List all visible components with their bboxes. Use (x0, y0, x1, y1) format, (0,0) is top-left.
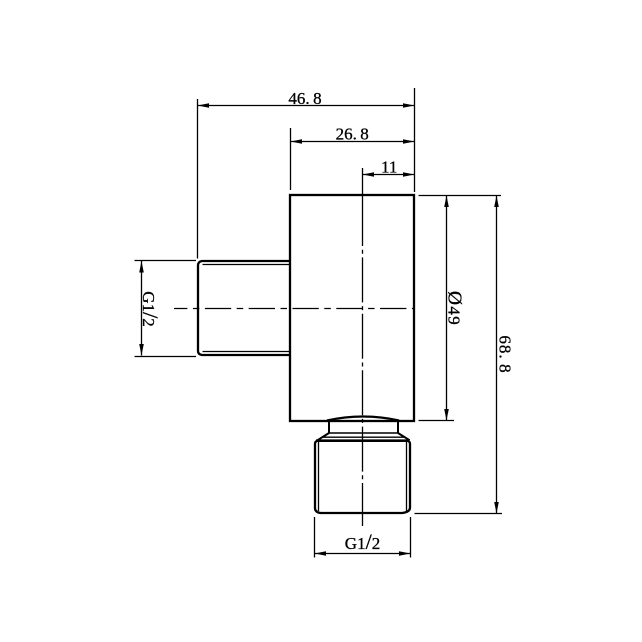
svg-text:46. 8: 46. 8 (288, 89, 321, 108)
svg-text:26. 8: 26. 8 (336, 125, 369, 144)
svg-text:G1/2: G1/2 (345, 529, 380, 554)
svg-text:Ø49: Ø49 (444, 291, 465, 326)
svg-text:11: 11 (381, 158, 397, 177)
svg-text:G1/2: G1/2 (138, 291, 163, 326)
svg-text:68. 8: 68. 8 (496, 335, 515, 373)
